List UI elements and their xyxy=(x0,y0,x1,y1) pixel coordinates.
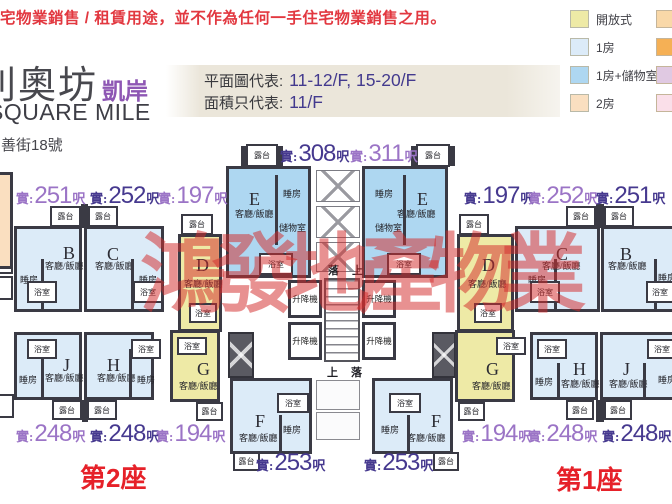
area-prefix: 實: xyxy=(350,146,367,165)
unit-e-e2: E睡房客廳/飯廳儲物室浴室 xyxy=(226,166,311,278)
unit-j-j2: J睡房客廳/飯廳浴室 xyxy=(14,332,82,400)
unit-letter: G xyxy=(197,359,210,380)
room-label-balcony: 露台 xyxy=(239,456,255,467)
area-unit: 呎 xyxy=(336,146,349,165)
room-label-living: 客廳/飯廳 xyxy=(542,259,581,272)
room-label-bath: 浴室 xyxy=(396,259,412,270)
room-label-living: 客廳/飯廳 xyxy=(608,259,647,272)
area-value: 248 xyxy=(620,420,657,448)
room-label-living: 客廳/飯廳 xyxy=(561,377,600,390)
area-prefix: 實: xyxy=(528,188,545,207)
unit-letter: D xyxy=(196,255,209,276)
room-label-bath: 浴室 xyxy=(285,398,301,409)
area-label: 實:248呎 xyxy=(602,420,671,448)
floor-plan: 落 上 升降機 升降機 升降機 升降機 上 落 xyxy=(0,0,672,504)
room-label-balcony: 露台 xyxy=(189,219,205,230)
area-unit: 呎 xyxy=(312,455,325,474)
room-label-bath: 浴室 xyxy=(480,308,496,319)
room-label-living: 客廳/飯廳 xyxy=(179,379,218,392)
balcony: 露台 xyxy=(458,402,485,421)
interior-wall xyxy=(557,363,560,400)
room-label-store: 儲物室 xyxy=(375,221,402,234)
balcony: 露台 xyxy=(87,400,117,420)
room-label-bath: 浴室 xyxy=(195,308,211,319)
floorplan-sheet: 宅物業銷售 / 租賃用途，並不作為任何一手住宅物業銷售之用。 利奧坊 凱岸 SQ… xyxy=(0,0,672,504)
area-label: 實:194呎 xyxy=(156,420,225,448)
area-prefix: 實: xyxy=(256,455,273,474)
unit-g-g2: G客廳/飯廳浴室 xyxy=(170,330,220,402)
room-label-balcony: 露台 xyxy=(254,150,270,161)
bathroom-box: 浴室 xyxy=(177,337,207,355)
room-label-store: 儲物室 xyxy=(279,221,306,234)
area-value: 253 xyxy=(274,449,311,477)
room-label-balcony: 露台 xyxy=(464,406,480,417)
balcony: 露台 xyxy=(181,214,213,235)
service-shaft xyxy=(228,332,254,378)
room-label-balcony: 露台 xyxy=(95,211,111,222)
area-prefix: 實: xyxy=(90,188,107,207)
area-value: 251 xyxy=(614,182,651,210)
unit-letter: F xyxy=(431,411,441,432)
area-label: 實:197呎 xyxy=(464,182,533,210)
bay-window xyxy=(0,394,14,418)
area-value: 248 xyxy=(108,420,145,448)
room-label-living: 客廳/飯廳 xyxy=(95,259,134,272)
room-label-living: 客廳/飯廳 xyxy=(184,277,223,290)
balcony: 露台 xyxy=(459,214,489,235)
area-value: 311 xyxy=(368,140,403,168)
area-label: 實:253呎 xyxy=(256,449,325,477)
area-value: 248 xyxy=(34,420,71,448)
area-prefix: 實: xyxy=(462,426,479,445)
area-label: 實:251呎 xyxy=(16,182,85,210)
room-label-living: 客廳/飯廳 xyxy=(239,431,278,444)
staircase xyxy=(324,278,360,362)
interior-wall xyxy=(403,175,406,245)
interior-wall xyxy=(275,175,278,245)
area-unit: 呎 xyxy=(212,426,225,445)
area-unit: 呎 xyxy=(72,188,85,207)
balcony: 露台 xyxy=(52,400,82,420)
unit-letter: F xyxy=(255,411,265,432)
area-prefix: 實: xyxy=(16,426,33,445)
area-value: 248 xyxy=(546,420,583,448)
room-label-bath: 浴室 xyxy=(34,344,50,355)
unit-b-b2: B睡房客廳/飯廳浴室 xyxy=(14,226,82,312)
area-value: 194 xyxy=(480,420,517,448)
room-label-balcony: 露台 xyxy=(59,405,75,416)
room-label-bed: 睡房 xyxy=(283,423,301,436)
service-shaft xyxy=(432,332,456,378)
bathroom-box: 浴室 xyxy=(27,339,57,359)
unit-h-h1: H睡房客廳/飯廳浴室 xyxy=(530,332,598,400)
area-label: 實:194呎 xyxy=(462,420,531,448)
lift-label: 升降機 xyxy=(292,293,318,305)
room-label-bath: 浴室 xyxy=(184,341,200,352)
bathroom-box: 浴室 xyxy=(389,393,421,413)
lift-label: 升降機 xyxy=(366,293,392,305)
unit-f-f1: F睡房客廳/飯廳浴室 xyxy=(372,378,453,454)
area-label: 實:311呎 xyxy=(350,140,418,168)
area-prefix: 實: xyxy=(158,188,175,207)
area-unit: 呎 xyxy=(584,426,597,445)
room-label-balcony: 露台 xyxy=(94,405,110,416)
room-label-balcony: 露台 xyxy=(572,405,588,416)
balcony: 露台 xyxy=(196,402,223,421)
balcony: 露台 xyxy=(566,400,594,420)
area-prefix: 實: xyxy=(90,426,107,445)
bathroom-box: 浴室 xyxy=(259,253,293,275)
room-label-bed: 睡房 xyxy=(535,375,553,388)
lift-box: 升降機 xyxy=(288,280,322,318)
balcony: 露台 xyxy=(604,400,632,420)
unit-f-f2: F客廳/飯廳睡房浴室 xyxy=(230,378,312,454)
area-label: 實:197呎 xyxy=(158,182,227,210)
balcony-divider xyxy=(241,146,246,166)
bay-window xyxy=(0,276,13,300)
room-label-balcony: 露台 xyxy=(610,405,626,416)
unit-j-j1: J客廳/飯廳睡房浴室 xyxy=(600,332,672,400)
lift-label: 升降機 xyxy=(292,335,318,347)
stair-down-label: 落 xyxy=(328,262,339,278)
balcony-divider xyxy=(82,400,88,422)
area-unit: 呎 xyxy=(72,426,85,445)
area-prefix: 實: xyxy=(596,188,613,207)
room-label-bath: 浴室 xyxy=(503,341,519,352)
balcony: 露台 xyxy=(246,144,278,167)
room-label-living: 客廳/飯廳 xyxy=(407,431,446,444)
bathroom-box: 浴室 xyxy=(277,393,309,413)
area-prefix: 實: xyxy=(16,188,33,207)
area-unit: 呎 xyxy=(405,146,418,165)
unit-g-g1: G客廳/飯廳浴室 xyxy=(455,330,515,402)
area-label: 實:308呎 xyxy=(280,140,349,168)
area-label: 實:251呎 xyxy=(596,182,665,210)
area-label: 實:248呎 xyxy=(90,420,159,448)
area-unit: 呎 xyxy=(652,188,665,207)
room-label-bath: 浴室 xyxy=(652,287,668,298)
room-label-living: 客廳/飯廳 xyxy=(235,207,274,220)
bathroom-box: 浴室 xyxy=(496,337,526,355)
area-unit: 呎 xyxy=(658,426,671,445)
bathroom-box: 浴室 xyxy=(647,339,672,359)
corridor-box xyxy=(316,412,360,440)
area-label: 實:248呎 xyxy=(16,420,85,448)
unit-letter: D xyxy=(482,255,495,276)
room-label-bath: 浴室 xyxy=(34,287,50,298)
area-prefix: 實: xyxy=(364,455,381,474)
corridor-box xyxy=(316,380,360,410)
room-label-living: 客廳/飯廳 xyxy=(609,377,648,390)
unit-c-c2: C客廳/飯廳睡房浴室 xyxy=(84,226,164,312)
room-label-balcony: 露台 xyxy=(611,211,627,222)
unit-d-d2: D客廳/飯廳浴室 xyxy=(178,234,222,332)
room-label-bath: 浴室 xyxy=(654,344,670,355)
room-label-bed: 睡房 xyxy=(658,373,672,386)
area-prefix: 實: xyxy=(464,188,481,207)
area-value: 197 xyxy=(482,182,519,210)
area-value: 251 xyxy=(34,182,71,210)
stair-up-label: 上 xyxy=(352,262,363,278)
balcony-divider xyxy=(450,146,455,166)
area-prefix: 實: xyxy=(528,426,545,445)
bathroom-box: 浴室 xyxy=(474,303,502,323)
interior-wall xyxy=(643,363,646,400)
area-label: 實:252呎 xyxy=(528,182,597,210)
room-label-bed: 睡房 xyxy=(375,187,393,200)
area-unit: 呎 xyxy=(214,188,227,207)
area-prefix: 實: xyxy=(280,146,297,165)
room-label-balcony: 露台 xyxy=(425,150,441,161)
room-label-balcony: 露台 xyxy=(573,211,589,222)
unit-e-e1: E睡房客廳/飯廳儲物室浴室 xyxy=(362,166,448,278)
room-label-bath: 浴室 xyxy=(544,344,560,355)
unit-c-c1: C睡房客廳/飯廳浴室 xyxy=(515,226,600,312)
area-prefix: 實: xyxy=(156,426,173,445)
room-label-bed: 睡房 xyxy=(381,423,399,436)
room-label-balcony: 露台 xyxy=(438,456,454,467)
bathroom-box: 浴室 xyxy=(537,339,567,359)
room-label-bath: 浴室 xyxy=(140,287,156,298)
room-label-bath: 浴室 xyxy=(138,344,154,355)
area-value: 253 xyxy=(382,449,419,477)
room-label-bath: 浴室 xyxy=(268,259,284,270)
bathroom-box: 浴室 xyxy=(27,281,57,303)
unit-a2 xyxy=(0,172,13,269)
area-label: 實:253呎 xyxy=(364,449,433,477)
unit-b-b1: B客廳/飯廳睡房浴室 xyxy=(601,226,672,312)
room-label-bed: 睡房 xyxy=(137,373,155,386)
bathroom-box: 浴室 xyxy=(133,281,163,303)
tower-1-label: 第1座 xyxy=(556,460,622,497)
area-label: 實:252呎 xyxy=(90,182,159,210)
lift-label: 升降機 xyxy=(366,335,392,347)
room-label-living: 客廳/飯廳 xyxy=(468,277,507,290)
room-label-balcony: 露台 xyxy=(202,406,218,417)
balcony-divider xyxy=(596,400,604,422)
lightwell-box xyxy=(316,206,360,238)
room-label-living: 客廳/飯廳 xyxy=(45,259,84,272)
balcony: 露台 xyxy=(433,452,459,471)
area-value: 252 xyxy=(108,182,145,210)
stair-down-label: 落 xyxy=(351,364,362,380)
room-label-balcony: 露台 xyxy=(466,219,482,230)
area-value: 252 xyxy=(546,182,583,210)
lift-box: 升降機 xyxy=(362,322,396,360)
room-label-bed: 睡房 xyxy=(19,373,37,386)
room-label-balcony: 露台 xyxy=(58,211,74,222)
bathroom-box: 浴室 xyxy=(530,281,560,303)
bathroom-box: 浴室 xyxy=(131,339,161,359)
lift-box: 升降機 xyxy=(362,280,396,318)
area-value: 308 xyxy=(298,140,335,168)
area-prefix: 實: xyxy=(602,426,619,445)
area-unit: 呎 xyxy=(420,455,433,474)
lightwell-box xyxy=(316,170,360,202)
bathroom-box: 浴室 xyxy=(189,303,217,323)
unit-h-h2: H客廳/飯廳睡房浴室 xyxy=(84,332,154,400)
room-label-bath: 浴室 xyxy=(397,398,413,409)
balcony: 露台 xyxy=(416,144,450,167)
area-value: 194 xyxy=(174,420,211,448)
area-label: 實:248呎 xyxy=(528,420,597,448)
room-label-living: 客廳/飯廳 xyxy=(45,371,84,384)
unit-letter: G xyxy=(486,359,499,380)
room-label-bed: 睡房 xyxy=(283,187,301,200)
stair-up-label: 上 xyxy=(327,364,338,380)
unit-d-d1: D客廳/飯廳浴室 xyxy=(457,234,514,332)
bathroom-box: 浴室 xyxy=(646,281,672,303)
bathroom-box: 浴室 xyxy=(387,253,421,275)
lift-box: 升降機 xyxy=(288,322,322,360)
tower-2-label: 第2座 xyxy=(80,458,146,495)
area-value: 197 xyxy=(176,182,213,210)
room-label-bath: 浴室 xyxy=(537,287,553,298)
room-label-living: 客廳/飯廳 xyxy=(472,379,511,392)
